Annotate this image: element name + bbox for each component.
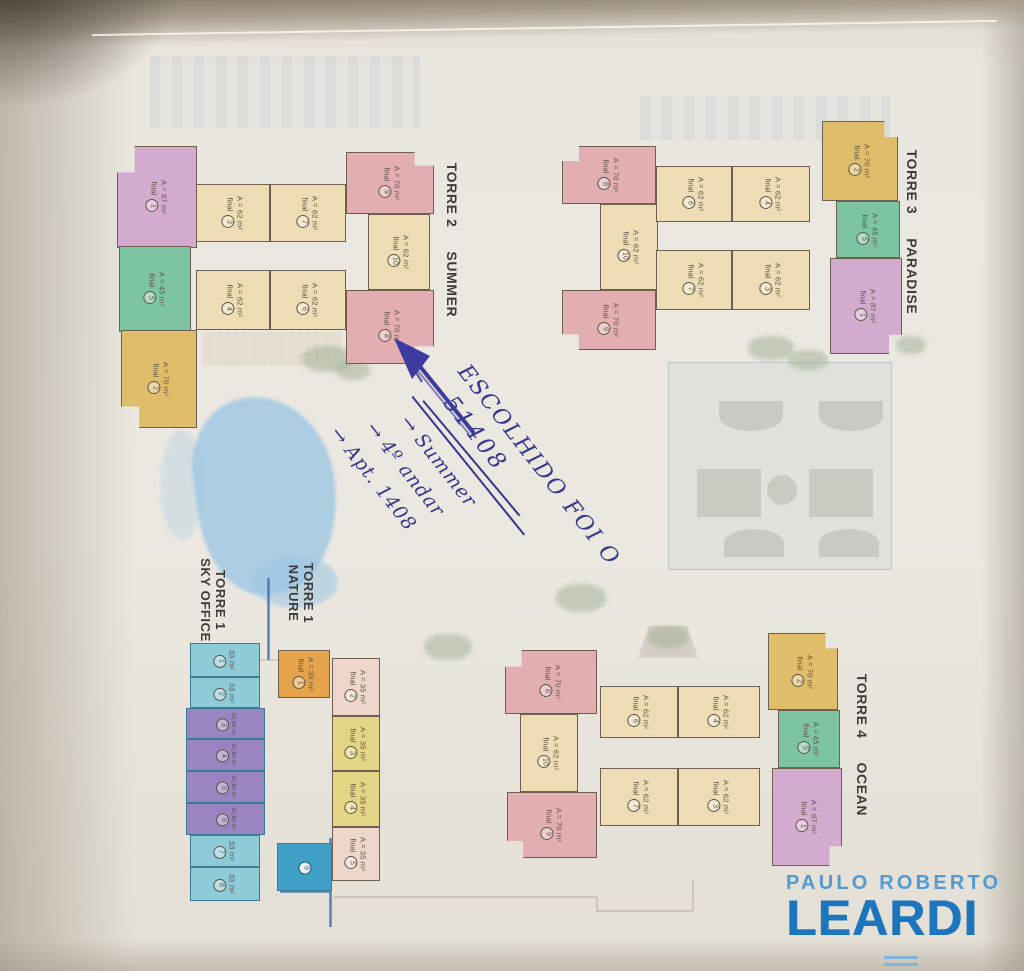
unit-torre-1-nature-final-1: A = 35 m²final 1 <box>278 650 330 698</box>
unit-torre-3-final-7: A = 62 m²final 7 <box>656 250 732 310</box>
unit-final: final 5 <box>144 272 157 306</box>
unit-number-badge: 5 <box>857 232 870 245</box>
unit-torre-3-final-5: A = 45 m²final 5 <box>836 201 900 258</box>
unit-torre-1-nature-final-3: A = 35 m²final 3 <box>332 716 380 771</box>
tree-foliage <box>424 634 472 660</box>
unit-number-badge: 9 <box>379 185 392 198</box>
unit-area: A = 62 m² <box>235 196 245 230</box>
unit-area: 33 m² <box>227 841 237 861</box>
unit-torre-3-final-10: A = 62 m²final 10 <box>600 204 658 290</box>
logo-name-main: LEARDI <box>786 895 1001 943</box>
unit-number-badge: 8 <box>379 329 392 342</box>
unit-torre-1-sky-office-6: 35,86 m²6 <box>186 803 265 835</box>
background-trapezoid <box>638 626 698 658</box>
unit-area: A = 35 m² <box>358 670 368 704</box>
unit-torre-4-final-3: A = 62 m²final 3 <box>678 768 760 826</box>
unit-final: final 6 <box>297 283 310 317</box>
unit-final: final 2 <box>792 654 805 688</box>
unit-torre-4-final-2: A = 70 m²final 2 <box>768 633 838 710</box>
unit-number-badge: 2 <box>792 674 805 687</box>
unit-final: final 7 <box>683 263 696 297</box>
unit-torre-2-final-7: A = 62 m²final 7 <box>270 184 346 242</box>
pool-shape-edge <box>160 430 204 540</box>
unit-final: final 9 <box>379 166 392 200</box>
unit-torre-1-nature-final-2: A = 35 m²final 2 <box>332 658 380 716</box>
unit-torre-1-nature-final-5: A = 35 m²final 5 <box>332 827 380 881</box>
unit-final: final 1 <box>855 289 868 323</box>
unit-final: final 1 <box>796 800 809 834</box>
unit-number-badge: 10 <box>618 249 631 262</box>
unit-final: final 5 <box>857 212 870 246</box>
unit-torre-2-final-5: A = 45 m²final 5 <box>119 246 191 332</box>
unit-final: final 1 <box>146 180 159 214</box>
unit-final: final 4 <box>345 782 358 816</box>
unit-final: 6 <box>215 807 228 830</box>
unit-number-badge: 1 <box>146 199 159 212</box>
unit-torre-1-sky-office-7: 33 m²7 <box>190 835 260 867</box>
unit-area: A = 70 m² <box>553 665 563 699</box>
unit-area: A = 70 m² <box>392 166 402 200</box>
unit-area: A = 62 m² <box>310 283 320 317</box>
unit-area: A = 87 m² <box>159 180 169 214</box>
unit-final: final 2 <box>148 362 161 396</box>
tree-foliage <box>748 336 794 360</box>
unit-final: final 6 <box>683 177 696 211</box>
unit-area: A = 35 m² <box>358 837 368 871</box>
unit-number-badge: 8 <box>598 177 611 190</box>
unit-number-badge: 10 <box>538 755 551 768</box>
unit-torre-2-final-2: A = 70 m²final 2 <box>121 330 197 428</box>
unit-final: final 5 <box>345 837 358 871</box>
unit-torre-1-sky-office-5: 35,86 m²5 <box>186 771 265 803</box>
unit-area: A = 62 m² <box>310 196 320 230</box>
unit-torre-1-sky-office-3: 35,86 m²3 <box>186 708 265 739</box>
unit-final: 1 <box>214 650 227 670</box>
sports-court <box>668 362 892 570</box>
unit-final: 2 <box>214 682 227 702</box>
unit-number-badge: 1 <box>214 654 227 667</box>
paper-edge <box>92 20 997 36</box>
unit-torre-1-sky-office-2: 33 m²2 <box>190 677 260 708</box>
unit-area: A = 70 m² <box>161 362 171 396</box>
unit-area: A = 62 m² <box>641 695 651 729</box>
unit-final: final 9 <box>541 808 554 842</box>
unit-area: A = 62 m² <box>401 235 411 269</box>
logo-mark <box>884 956 918 968</box>
unit-final: final 1 <box>293 657 306 691</box>
unit-number-badge: 6 <box>683 196 696 209</box>
handwritten-note: ESCOLHIDO FOI O 51408 →Summer →4º andar … <box>344 360 624 655</box>
unit-torre-3-final-8: A = 70 m²final 8 <box>562 146 656 204</box>
unit-number-badge: 1 <box>293 676 306 689</box>
unit-area: A = 62 m² <box>631 230 641 264</box>
unit-number-badge: 1 <box>796 819 809 832</box>
unit-final: final 4 <box>222 283 235 317</box>
unit-area: A = 35 m² <box>358 726 368 760</box>
unit-number-badge: 5 <box>798 741 811 754</box>
unit-torre-4-final-1: A = 87 m²final 1 <box>772 768 842 866</box>
unit-final: final 6 <box>628 695 641 729</box>
unit-final: final 4 <box>760 177 773 211</box>
unit-number-badge: 3 <box>345 746 358 759</box>
unit-number-badge: 8 <box>540 684 553 697</box>
unit-torre-4-final-7: A = 62 m²final 7 <box>600 768 678 826</box>
unit-area: 33 m² <box>227 874 237 894</box>
unit-area: A = 87 m² <box>809 800 819 834</box>
unit-torre-1-sky-office-4: 35,86 m²4 <box>186 739 265 771</box>
unit-area: A = 62 m² <box>773 177 783 211</box>
unit-number-badge: 4 <box>222 302 235 315</box>
unit-final: final 10 <box>388 235 401 269</box>
tree-foliage <box>788 350 828 370</box>
unit-torre-2-final-4: A = 62 m²final 4 <box>196 270 270 330</box>
unit-area: 35,86 m² <box>228 743 235 766</box>
unit-torre-1-sky-office-8: 33 m²8 <box>190 867 260 901</box>
unit-torre-4-final-8: A = 70 m²final 8 <box>505 650 597 714</box>
unit-number-badge: 6 <box>297 302 310 315</box>
unit-area: A = 70 m² <box>611 158 621 192</box>
unit-final: final 7 <box>628 780 641 814</box>
unit-final: final 9 <box>598 303 611 337</box>
unit-area: A = 45 m² <box>870 212 880 246</box>
unit-number-badge: 9 <box>598 322 611 335</box>
unit-number-badge: 4 <box>215 750 228 763</box>
unit-final: final 5 <box>798 722 811 756</box>
unit-torre-3-final-4: A = 62 m²final 4 <box>732 166 810 222</box>
unit-torre-1-nature-final-4: A = 35 m²final 4 <box>332 771 380 827</box>
unit-torre-3-final-6: A = 62 m²final 6 <box>656 166 732 222</box>
unit-area: A = 62 m² <box>721 695 731 729</box>
unit-area: A = 70 m² <box>805 654 815 688</box>
unit-number-badge: 7 <box>683 282 696 295</box>
unit-final: 9 <box>298 860 311 875</box>
unit-number-badge: 4 <box>345 801 358 814</box>
unit-torre-2-final-9: A = 70 m²final 9 <box>346 152 434 214</box>
unit-torre-3-final-3: A = 62 m²final 3 <box>732 250 810 310</box>
unit-number-badge: 3 <box>215 718 228 731</box>
unit-final: final 8 <box>598 158 611 192</box>
unit-torre-2-final-3: A = 62 m²final 3 <box>196 184 270 242</box>
unit-final: final 10 <box>618 230 631 264</box>
unit-torre-4-final-4: A = 62 m²final 4 <box>678 686 760 738</box>
unit-area: A = 62 m² <box>551 736 561 770</box>
unit-torre-1-sky-office-1: 33 m²1 <box>190 643 260 677</box>
unit-torre-4-final-9: A = 70 m²final 9 <box>507 792 597 858</box>
floorplan-photo: A = 87 m²final 1A = 45 m²final 5A = 70 m… <box>0 0 1024 971</box>
unit-number-badge: 10 <box>388 254 401 267</box>
unit-final: 5 <box>215 775 228 798</box>
unit-torre-2-final-8: A = 70 m²final 8 <box>346 290 434 364</box>
unit-number-badge: 5 <box>215 782 228 795</box>
unit-area: A = 70 m² <box>554 808 564 842</box>
unit-area: A = 62 m² <box>235 283 245 317</box>
photo-shading-right <box>980 0 1024 971</box>
unit-area: A = 62 m² <box>721 780 731 814</box>
plan-gray-outline <box>334 880 693 911</box>
leardi-logo: PAULO ROBERTO LEARDI <box>786 872 1001 943</box>
unit-torre-4-final-10: A = 62 m²final 10 <box>520 714 578 792</box>
unit-area: 35,86 m² <box>228 775 235 798</box>
unit-number-badge: 2 <box>148 381 161 394</box>
background-buildings-top <box>150 56 420 128</box>
unit-number-badge: 3 <box>708 799 721 812</box>
unit-area: A = 62 m² <box>696 177 706 211</box>
unit-area: A = 45 m² <box>811 722 821 756</box>
unit-area: A = 62 m² <box>641 780 651 814</box>
unit-number-badge: 3 <box>222 215 235 228</box>
photo-shading-top <box>0 0 1024 48</box>
unit-final: final 2 <box>849 144 862 178</box>
unit-torre-3-final-1: A = 87 m²final 1 <box>830 258 902 354</box>
unit-area: A = 45 m² <box>157 272 167 306</box>
unit-torre-2-final-1: A = 87 m²final 1 <box>117 146 197 248</box>
unit-area: 33 m² <box>227 650 237 670</box>
unit-final: 7 <box>214 841 227 861</box>
unit-area: A = 62 m² <box>773 263 783 297</box>
unit-torre-1-nature-9: 9 <box>277 843 332 891</box>
unit-area: 35,86 m² <box>228 807 235 830</box>
photo-shading-left <box>0 0 135 971</box>
unit-final: final 4 <box>708 695 721 729</box>
unit-number-badge: 6 <box>628 714 641 727</box>
unit-area: A = 70 m² <box>862 144 872 178</box>
unit-final: 8 <box>214 874 227 894</box>
unit-final: final 3 <box>760 263 773 297</box>
unit-area: A = 35 m² <box>358 782 368 816</box>
unit-area: A = 35 m² <box>306 657 316 691</box>
unit-final: final 8 <box>540 665 553 699</box>
unit-final: final 3 <box>708 780 721 814</box>
unit-area: 35,86 m² <box>228 712 235 735</box>
unit-torre-3-final-9: A = 70 m²final 9 <box>562 290 656 350</box>
photo-shading-corner <box>0 0 180 110</box>
unit-number-badge: 5 <box>144 291 157 304</box>
unit-number-badge: 2 <box>214 687 227 700</box>
tree-foliage <box>896 336 926 354</box>
unit-number-badge: 8 <box>214 878 227 891</box>
unit-number-badge: 4 <box>760 196 773 209</box>
unit-area: A = 70 m² <box>392 310 402 344</box>
unit-torre-3-final-2: A = 70 m²final 2 <box>822 121 898 201</box>
unit-area: 33 m² <box>227 682 237 702</box>
unit-number-badge: 1 <box>855 308 868 321</box>
unit-area: A = 87 m² <box>868 289 878 323</box>
unit-number-badge: 9 <box>298 862 311 875</box>
unit-number-badge: 7 <box>214 845 227 858</box>
unit-final: 4 <box>215 743 228 766</box>
unit-torre-2-final-6: A = 62 m²final 6 <box>270 270 346 330</box>
unit-number-badge: 3 <box>760 282 773 295</box>
unit-final: final 10 <box>538 736 551 770</box>
unit-number-badge: 7 <box>297 215 310 228</box>
unit-final: 3 <box>215 712 228 735</box>
unit-number-badge: 4 <box>708 714 721 727</box>
unit-number-badge: 7 <box>628 799 641 812</box>
tree-foliage <box>648 626 688 648</box>
unit-final: final 2 <box>345 670 358 704</box>
unit-area: A = 70 m² <box>611 303 621 337</box>
unit-number-badge: 2 <box>849 163 862 176</box>
unit-final: final 3 <box>345 726 358 760</box>
unit-torre-2-final-10: A = 62 m²final 10 <box>368 214 430 290</box>
unit-area: A = 62 m² <box>696 263 706 297</box>
unit-final: final 3 <box>222 196 235 230</box>
unit-torre-4-final-6: A = 62 m²final 6 <box>600 686 678 738</box>
unit-number-badge: 2 <box>345 689 358 702</box>
unit-number-badge: 6 <box>215 814 228 827</box>
background-facade-strip <box>202 332 342 366</box>
unit-number-badge: 9 <box>541 827 554 840</box>
unit-number-badge: 5 <box>345 856 358 869</box>
unit-torre-4-final-5: A = 45 m²final 5 <box>778 710 840 768</box>
unit-final: final 8 <box>379 310 392 344</box>
unit-final: final 7 <box>297 196 310 230</box>
